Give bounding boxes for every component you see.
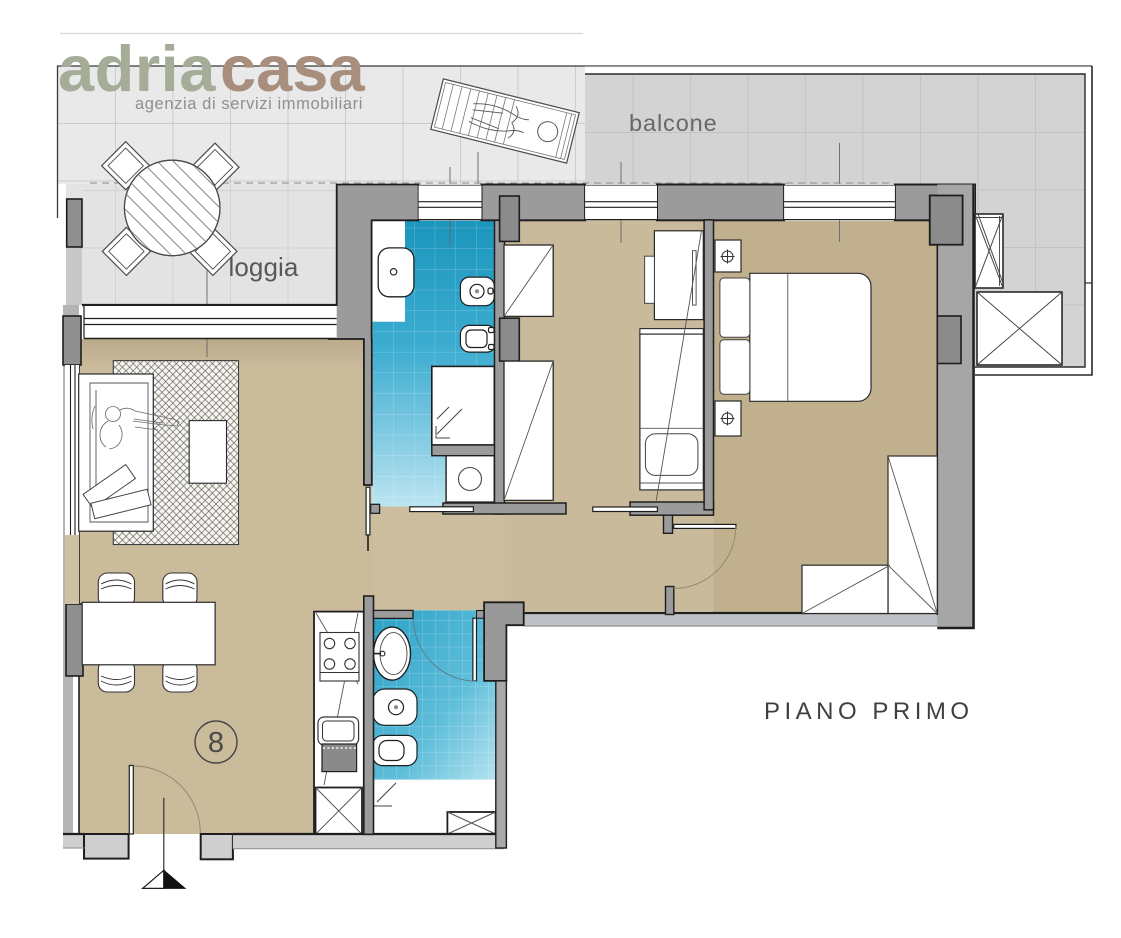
svg-text:agenzia di servizi immobiliari: agenzia di servizi immobiliari [135, 95, 363, 113]
svg-text:balcone: balcone [629, 110, 718, 136]
svg-text:loggia: loggia [229, 252, 299, 282]
svg-text:8: 8 [208, 727, 224, 759]
svg-text:PIANO PRIMO: PIANO PRIMO [764, 698, 974, 725]
